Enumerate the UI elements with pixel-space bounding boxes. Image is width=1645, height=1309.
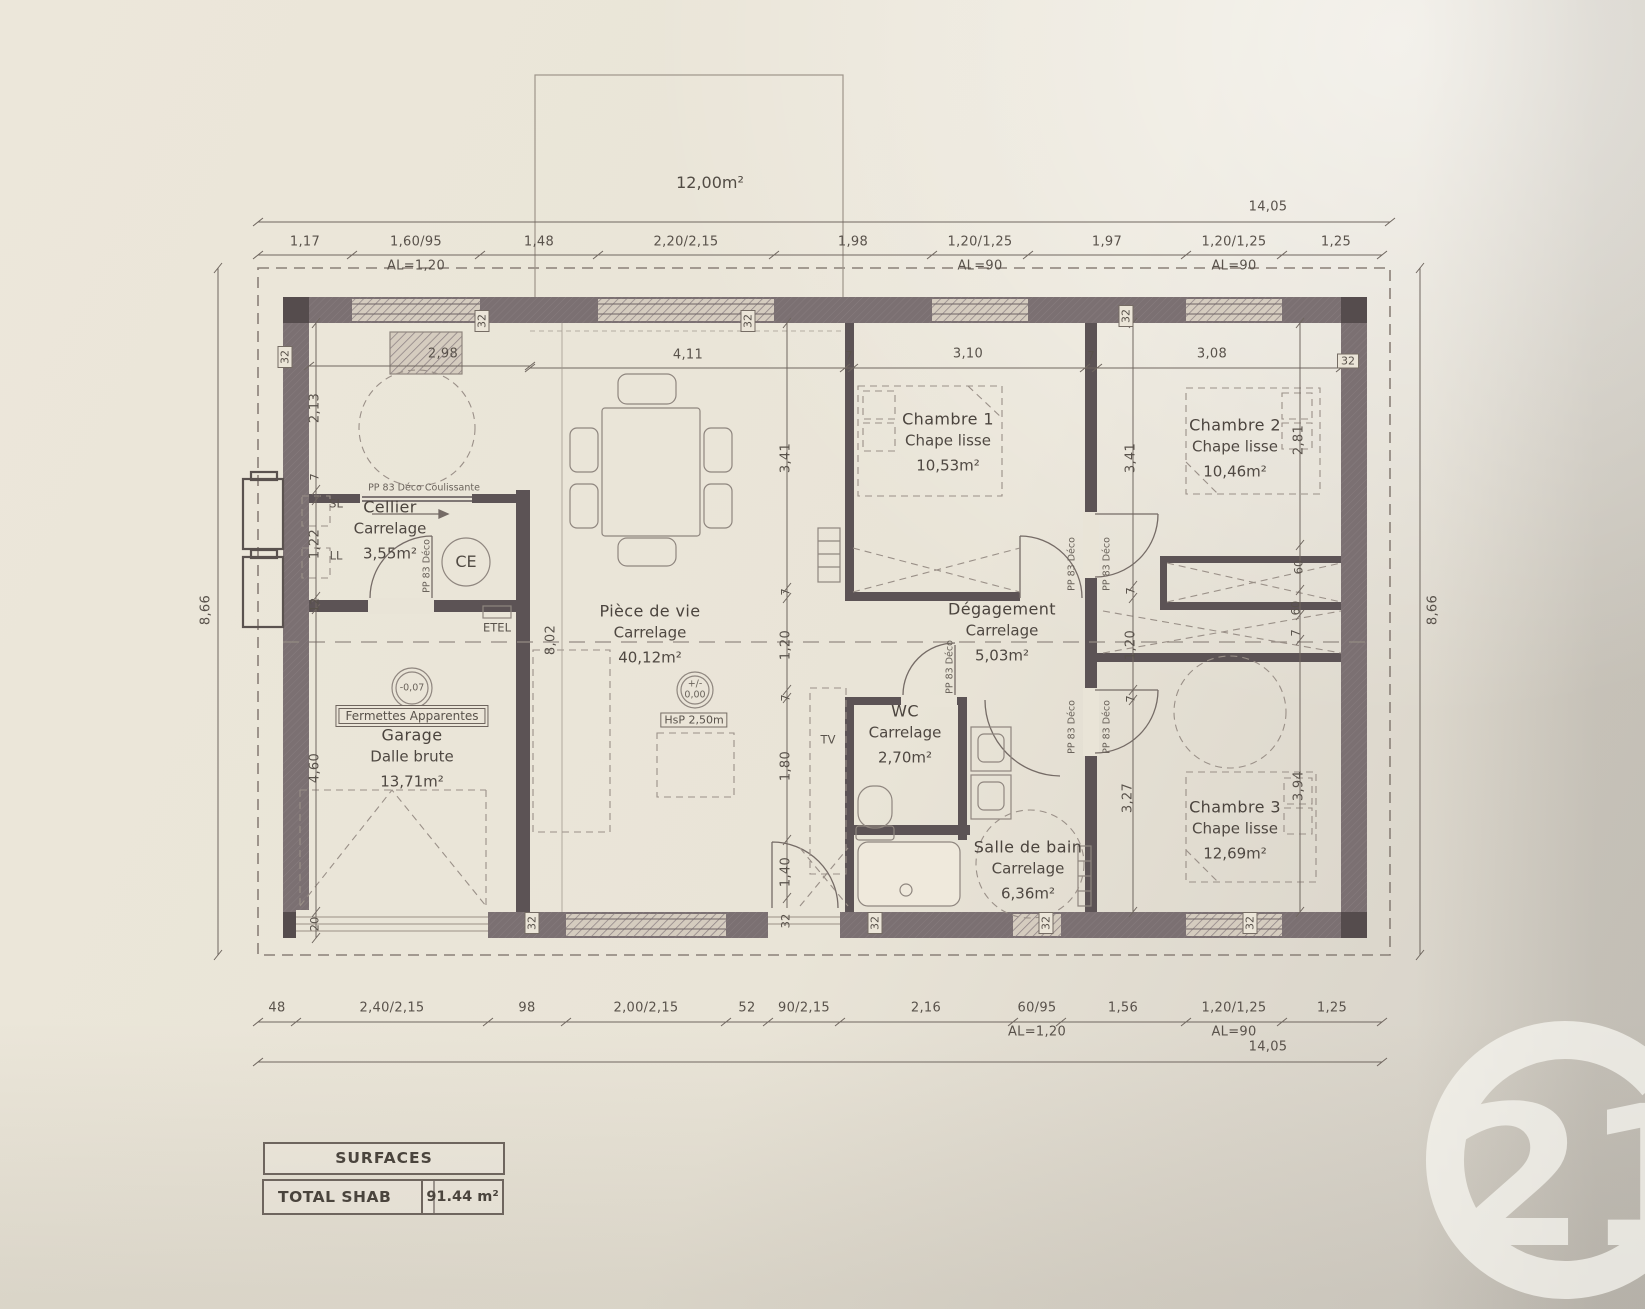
room-finish: Dalle brute xyxy=(370,748,453,766)
dim-label: 7 xyxy=(1125,695,1137,702)
dim-label: 1,80 xyxy=(780,751,793,781)
door-label: PP 83 Déco xyxy=(1102,537,1112,591)
century21-watermark: 21 xyxy=(1395,990,1645,1309)
room-label-chambre-1: Chambre 1Chape lisse10,53m² xyxy=(902,410,994,475)
door-label: PP 83 Déco xyxy=(1102,700,1112,754)
dim-label: 2,81 xyxy=(1293,425,1306,455)
room-finish: Carrelage xyxy=(869,724,942,742)
dim-label: 3,10 xyxy=(953,348,983,361)
dim-label: 48 xyxy=(268,1002,285,1015)
level-marker: +/- xyxy=(688,679,703,689)
room-area: 12,69m² xyxy=(1189,845,1281,863)
wall-thickness-marker: 32 xyxy=(868,912,883,934)
dim-label: 1,97 xyxy=(1092,236,1122,249)
dim-label: AL=1,20 xyxy=(1008,1026,1066,1039)
room-area: 13,71m² xyxy=(370,773,453,791)
dim-label: 60/95 xyxy=(1018,1002,1057,1015)
dim-label: AL=90 xyxy=(1211,260,1256,273)
dim-label: 32 xyxy=(780,914,792,929)
dim-label: 7 xyxy=(1290,629,1302,636)
dim-label: 1,20/1,25 xyxy=(1202,1002,1267,1015)
room-name: Cellier xyxy=(354,498,427,517)
dim-label: 3,41 xyxy=(780,443,793,473)
dim-label: 7 xyxy=(780,588,792,595)
wall-thickness-marker: 32 xyxy=(741,310,756,332)
century21-logo-icon: 21 xyxy=(1445,1040,1645,1291)
room-name: Dégagement xyxy=(948,600,1056,619)
room-area: 40,12m² xyxy=(600,649,701,667)
room-label-degagement: DégagementCarrelage5,03m² xyxy=(948,600,1056,665)
dim-label: AL=90 xyxy=(957,260,1002,273)
room-name: WC xyxy=(869,702,942,721)
dim-label: 1,60/95 xyxy=(390,236,442,249)
room-area: 2,70m² xyxy=(869,749,942,767)
ceiling-height-label: HsP 2,50m xyxy=(660,713,727,728)
dim-label: 1,20 xyxy=(1125,630,1138,660)
dim-label: 2,00/2,15 xyxy=(614,1002,679,1015)
dim-label: 8,02 xyxy=(545,625,558,655)
room-finish: Carrelage xyxy=(974,860,1083,878)
wall-thickness-marker: 32 xyxy=(1337,354,1359,369)
roof-truss-label: Fermettes Apparentes xyxy=(338,708,485,724)
dim-label: 7 xyxy=(309,473,321,480)
room-label-wc: WCCarrelage2,70m² xyxy=(869,702,942,767)
wall-thickness-marker: 32 xyxy=(1119,305,1134,327)
room-area: 6,36m² xyxy=(974,885,1083,903)
dim-label: 7 xyxy=(1125,587,1137,594)
dim-label: 98 xyxy=(518,1002,535,1015)
dim-label: 2,16 xyxy=(911,1002,941,1015)
level-marker: -0,07 xyxy=(400,683,425,693)
total-shab-value: 91.44 m² xyxy=(421,1179,504,1215)
dryer-label: LL xyxy=(330,550,343,562)
dim-label: 1,25 xyxy=(1317,1002,1347,1015)
room-label-garage: GarageDalle brute13,71m² xyxy=(370,726,453,791)
water-heater-label: CE xyxy=(455,554,476,570)
dim-label: 90/2,15 xyxy=(778,1002,830,1015)
room-area: 10,53m² xyxy=(902,457,994,475)
level-marker: 0,00 xyxy=(684,690,705,700)
dim-label: 7 xyxy=(845,350,852,362)
room-label-chambre-2: Chambre 2Chape lisse10,46m² xyxy=(1189,416,1281,481)
washer-label: SL xyxy=(329,498,343,510)
overall-width-bottom: 14,05 xyxy=(1249,1041,1288,1054)
terrace-area-label: 12,00m² xyxy=(676,175,744,191)
dim-label: 1,98 xyxy=(838,236,868,249)
total-shab-label: TOTAL SHAB xyxy=(262,1179,435,1215)
dim-label: 4,11 xyxy=(673,349,703,362)
room-finish: Carrelage xyxy=(948,622,1056,640)
room-label-salle-de-bain: Salle de bainCarrelage6,36m² xyxy=(974,838,1083,903)
dim-label: 1,48 xyxy=(524,236,554,249)
dim-label: 2,40/2,15 xyxy=(360,1002,425,1015)
dim-label: 3,94 xyxy=(1293,771,1306,801)
wall-thickness-marker: 32 xyxy=(525,912,540,934)
scanned-floor-plan-page: CellierCarrelage3,55m²GarageDalle brute1… xyxy=(0,0,1645,1309)
dim-label: 3,08 xyxy=(1197,348,1227,361)
sliding-door-label: PP 83 Déco Coulissante xyxy=(368,483,480,493)
dim-label: 1,40 xyxy=(780,857,793,887)
dim-label: 7 xyxy=(780,694,792,701)
dim-label: AL=1,20 xyxy=(387,260,445,273)
electrical-panel-label: ETEL xyxy=(483,622,511,634)
room-area: 5,03m² xyxy=(948,647,1056,665)
dim-label: 60 xyxy=(1290,601,1302,616)
surfaces-table-header: SURFACES xyxy=(263,1142,505,1175)
room-name: Salle de bain xyxy=(974,838,1083,857)
overall-height-right: 8,66 xyxy=(1427,595,1440,625)
wall-thickness-marker: 32 xyxy=(475,310,490,332)
room-name: Garage xyxy=(370,726,453,745)
wall-thickness-marker: 32 xyxy=(278,346,293,368)
dim-label: 2,98 xyxy=(428,348,458,361)
room-finish: Chape lisse xyxy=(1189,820,1281,838)
dim-label: 1,20/1,25 xyxy=(948,236,1013,249)
dim-label: 2,20/2,15 xyxy=(654,236,719,249)
room-finish: Carrelage xyxy=(600,624,701,642)
century21-number: 21 xyxy=(1449,1064,1645,1291)
overall-width-top: 14,05 xyxy=(1249,201,1288,214)
dim-label: 20 xyxy=(309,917,321,932)
overall-height-left: 8,66 xyxy=(200,595,213,625)
dim-label: 3,27 xyxy=(1122,783,1135,813)
dim-label: 3,41 xyxy=(1125,443,1138,473)
room-name: Chambre 1 xyxy=(902,410,994,429)
door-label: PP 83 Déco xyxy=(1067,537,1077,591)
dim-label: AL=90 xyxy=(1211,1026,1256,1039)
dim-label: 52 xyxy=(738,1002,755,1015)
dim-label: 1,25 xyxy=(1321,236,1351,249)
room-finish: Chape lisse xyxy=(902,432,994,450)
wall-thickness-marker: 32 xyxy=(1039,912,1054,934)
room-area: 10,46m² xyxy=(1189,463,1281,481)
dim-label: 1,22 xyxy=(309,529,322,559)
dim-label: 1,17 xyxy=(290,236,320,249)
dim-label: 4,60 xyxy=(309,753,322,783)
dim-label: 60 xyxy=(1293,560,1305,575)
room-finish: Chape lisse xyxy=(1189,438,1281,456)
dim-label: 1,56 xyxy=(1108,1002,1138,1015)
room-name: Pièce de vie xyxy=(600,602,701,621)
dim-label: 2,13 xyxy=(309,393,322,423)
room-finish: Carrelage xyxy=(354,520,427,538)
room-area: 3,55m² xyxy=(354,545,427,563)
dim-label: 7 xyxy=(1087,350,1094,362)
room-name: Chambre 3 xyxy=(1189,798,1281,817)
dim-label: 1,20/1,25 xyxy=(1202,236,1267,249)
door-label: PP 83 Déco xyxy=(1067,700,1077,754)
room-label-piece-de-vie: Pièce de vieCarrelage40,12m² xyxy=(600,602,701,667)
room-label-cellier: CellierCarrelage3,55m² xyxy=(354,498,427,563)
tv-label: TV xyxy=(821,734,836,746)
dim-label: 1,20 xyxy=(780,630,793,660)
room-name: Chambre 2 xyxy=(1189,416,1281,435)
wall-thickness-marker: 32 xyxy=(1243,912,1258,934)
room-label-chambre-3: Chambre 3Chape lisse12,69m² xyxy=(1189,798,1281,863)
dim-label: 12 xyxy=(309,598,321,613)
